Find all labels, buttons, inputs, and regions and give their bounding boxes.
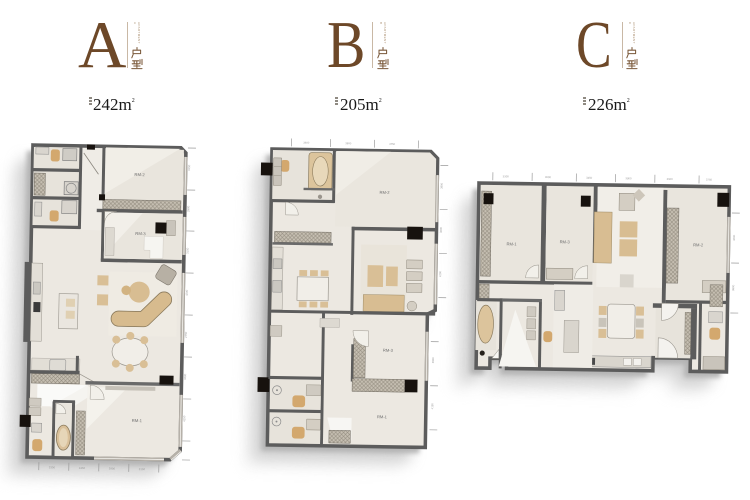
svg-text:3900: 3900	[625, 176, 632, 180]
svg-text:3600: 3600	[303, 141, 310, 145]
svg-text:3900: 3900	[109, 467, 116, 471]
svg-text:3600: 3600	[667, 176, 674, 180]
svg-text:3150: 3150	[139, 467, 146, 471]
svg-text:3600: 3600	[183, 373, 187, 380]
svg-text:RM-2: RM-2	[134, 172, 145, 177]
svg-text:2450: 2450	[79, 466, 86, 470]
svg-text:3300: 3300	[49, 465, 56, 469]
svg-text:RM-2: RM-2	[380, 190, 391, 195]
svg-text:3600: 3600	[439, 226, 443, 233]
svg-text:4150: 4150	[182, 415, 186, 422]
svg-text:3750: 3750	[706, 177, 713, 181]
svg-text:3150: 3150	[185, 247, 189, 254]
svg-text:3150: 3150	[187, 164, 191, 171]
svg-text:4200: 4200	[732, 234, 736, 241]
svg-text:4150: 4150	[430, 403, 434, 410]
svg-text:3900: 3900	[440, 182, 444, 189]
svg-text:RM-2: RM-2	[693, 242, 704, 247]
svg-text:RM-1: RM-1	[506, 241, 517, 246]
svg-text:RM-3: RM-3	[383, 348, 394, 353]
svg-text:3450: 3450	[586, 175, 593, 179]
svg-text:2900: 2900	[186, 205, 190, 212]
svg-text:RM-1: RM-1	[132, 418, 143, 423]
svg-text:3300: 3300	[503, 174, 510, 178]
svg-text:3750: 3750	[389, 142, 396, 146]
svg-text:3600: 3600	[545, 175, 552, 179]
svg-text:3900: 3900	[731, 284, 735, 291]
svg-text:2750: 2750	[184, 331, 188, 338]
svg-text:3900: 3900	[431, 357, 435, 364]
svg-text:3900: 3900	[345, 141, 352, 145]
svg-text:RM-1: RM-1	[377, 414, 388, 419]
svg-text:RM-3: RM-3	[560, 239, 571, 244]
svg-text:4200: 4200	[438, 271, 442, 278]
svg-text:RM-3: RM-3	[135, 231, 146, 236]
svg-text:4200: 4200	[185, 289, 189, 296]
